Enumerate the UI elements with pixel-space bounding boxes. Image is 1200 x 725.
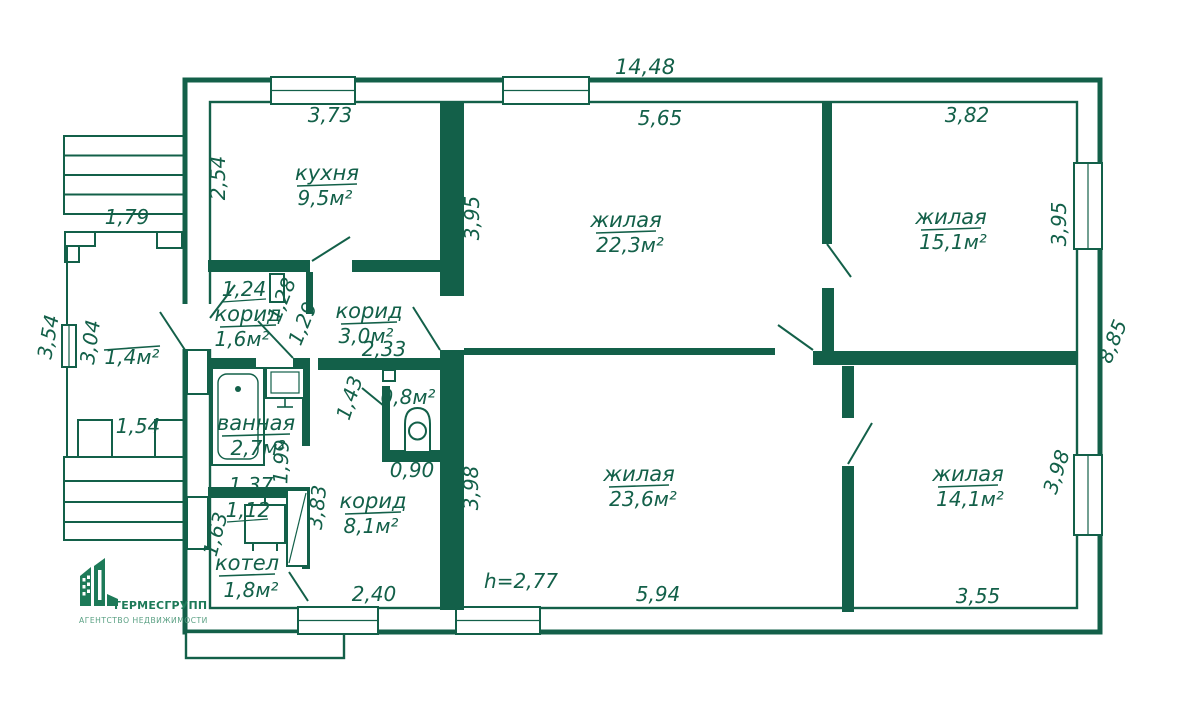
porch-wall-post bbox=[157, 232, 182, 248]
dim-living1-top: 5,65 bbox=[638, 106, 683, 130]
wall-pier bbox=[383, 370, 395, 381]
living1-living3-wall bbox=[464, 348, 775, 355]
dim-boiler-top: 1,12 bbox=[226, 498, 271, 522]
living1-living2-wall bbox=[822, 102, 832, 244]
porch-wall-post bbox=[78, 420, 112, 457]
room-area-living1: 22,3м² bbox=[596, 233, 664, 257]
room-area-living4: 14,1м² bbox=[936, 487, 1004, 511]
room-name-hall-mid: корид bbox=[335, 299, 402, 323]
room-name-living1: жилая bbox=[589, 208, 662, 232]
living3-living4-wall bbox=[842, 366, 854, 418]
room-area-kitchen: 9,5м² bbox=[298, 186, 353, 210]
room-area-hall-small: 1,6м² bbox=[215, 327, 270, 351]
room-name-living3: жилая bbox=[602, 462, 675, 486]
dim-hall3-left: 3,83 bbox=[303, 484, 332, 531]
room-name-hall-big: корид bbox=[339, 489, 406, 513]
room-name-kitchen: кухня bbox=[295, 161, 359, 185]
kitchen-window bbox=[271, 77, 355, 104]
living1-living2-wall bbox=[822, 288, 834, 351]
dim-hall1-top: 1,24 bbox=[222, 277, 267, 301]
room-area-living3: 23,6м² bbox=[609, 487, 677, 511]
porch-wall-post bbox=[65, 232, 95, 246]
kitchen-bottom-wall bbox=[208, 260, 310, 272]
dim-wc-bottom: 0,90 bbox=[390, 458, 435, 482]
entrance-step bbox=[186, 632, 344, 658]
floor-plan-drawing: кухня 9,5м² жилая 22,3м² жилая 15,1м² жи… bbox=[0, 0, 1200, 725]
dim-living2-top: 3,82 bbox=[945, 103, 990, 127]
living3-window bbox=[456, 607, 540, 634]
dim-living4-bottom: 3,55 bbox=[956, 584, 1001, 608]
kitchen-bottom-wall bbox=[352, 260, 444, 272]
lower-stairs-block bbox=[64, 457, 185, 540]
living1-window bbox=[503, 77, 589, 104]
entrance-opening bbox=[182, 304, 213, 349]
dim-overall-top: 14,48 bbox=[615, 55, 675, 79]
dim-ceiling-height: h=2,77 bbox=[484, 569, 558, 593]
agency-tagline: АГЕНТСТВО НЕДВИЖИМОСТИ bbox=[79, 616, 208, 625]
dim-porch-bottom: 1,54 bbox=[116, 414, 161, 438]
room-name-living4: жилая bbox=[931, 462, 1004, 486]
agency-name: ГЕРМЕСГРУПП bbox=[114, 599, 207, 612]
dim-living1-left: 3,95 bbox=[460, 196, 484, 241]
dim-hall3-bottom: 2,40 bbox=[352, 582, 397, 606]
dim-hall2-width: 2,33 bbox=[362, 337, 407, 361]
mid-horizontal-wall bbox=[813, 351, 1077, 365]
dim-bath-bottom: 1,37 bbox=[229, 473, 274, 497]
room-area-wc: 0,8м² bbox=[381, 385, 436, 409]
dim-living3-bottom: 5,94 bbox=[636, 582, 681, 606]
room-name-living2: жилая bbox=[914, 205, 987, 229]
room-area-boiler: 1,8м² bbox=[224, 578, 279, 602]
room-name-bathroom: ванная bbox=[217, 411, 295, 435]
dim-kitchen-top: 3,73 bbox=[308, 103, 353, 127]
toilet bbox=[405, 408, 430, 452]
dim-living3-left: 3,98 bbox=[459, 466, 483, 511]
living4-window bbox=[1074, 455, 1102, 535]
entrance-door-panel bbox=[187, 350, 208, 394]
hall-window bbox=[298, 607, 378, 634]
room-area-living2: 15,1м² bbox=[919, 230, 987, 254]
living2-window bbox=[1074, 163, 1102, 249]
room-area-hall-big: 8,1м² bbox=[344, 514, 399, 538]
floor-plan-page: кухня 9,5м² жилая 22,3м² жилая 15,1м² жи… bbox=[0, 0, 1200, 725]
dim-living2-right: 3,95 bbox=[1047, 202, 1071, 247]
dim-stairs-top: 1,79 bbox=[105, 205, 150, 229]
room-name-boiler: котел bbox=[215, 551, 279, 575]
living3-living4-wall bbox=[842, 466, 854, 612]
dim-bath-right: 1,99 bbox=[268, 439, 294, 484]
dim-kitchen-left: 2,54 bbox=[206, 156, 230, 201]
